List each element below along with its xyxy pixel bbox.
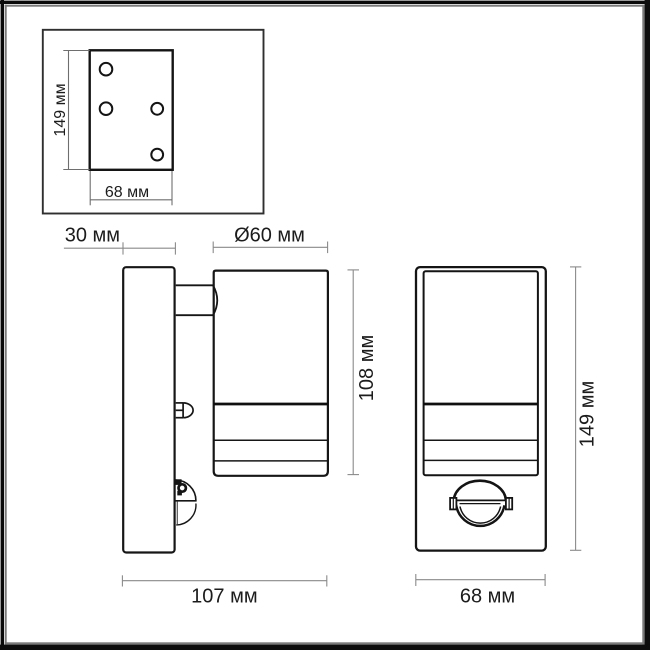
svg-text:68 мм: 68 мм — [105, 184, 149, 201]
svg-text:108 мм: 108 мм — [356, 335, 378, 401]
svg-text:149 мм: 149 мм — [577, 381, 599, 447]
svg-text:68 мм: 68 мм — [460, 586, 515, 608]
svg-text:107 мм: 107 мм — [191, 585, 257, 607]
svg-text:30 мм: 30 мм — [65, 224, 120, 246]
svg-text:149 мм: 149 мм — [52, 83, 69, 136]
svg-text:Ø60 мм: Ø60 мм — [234, 225, 305, 247]
